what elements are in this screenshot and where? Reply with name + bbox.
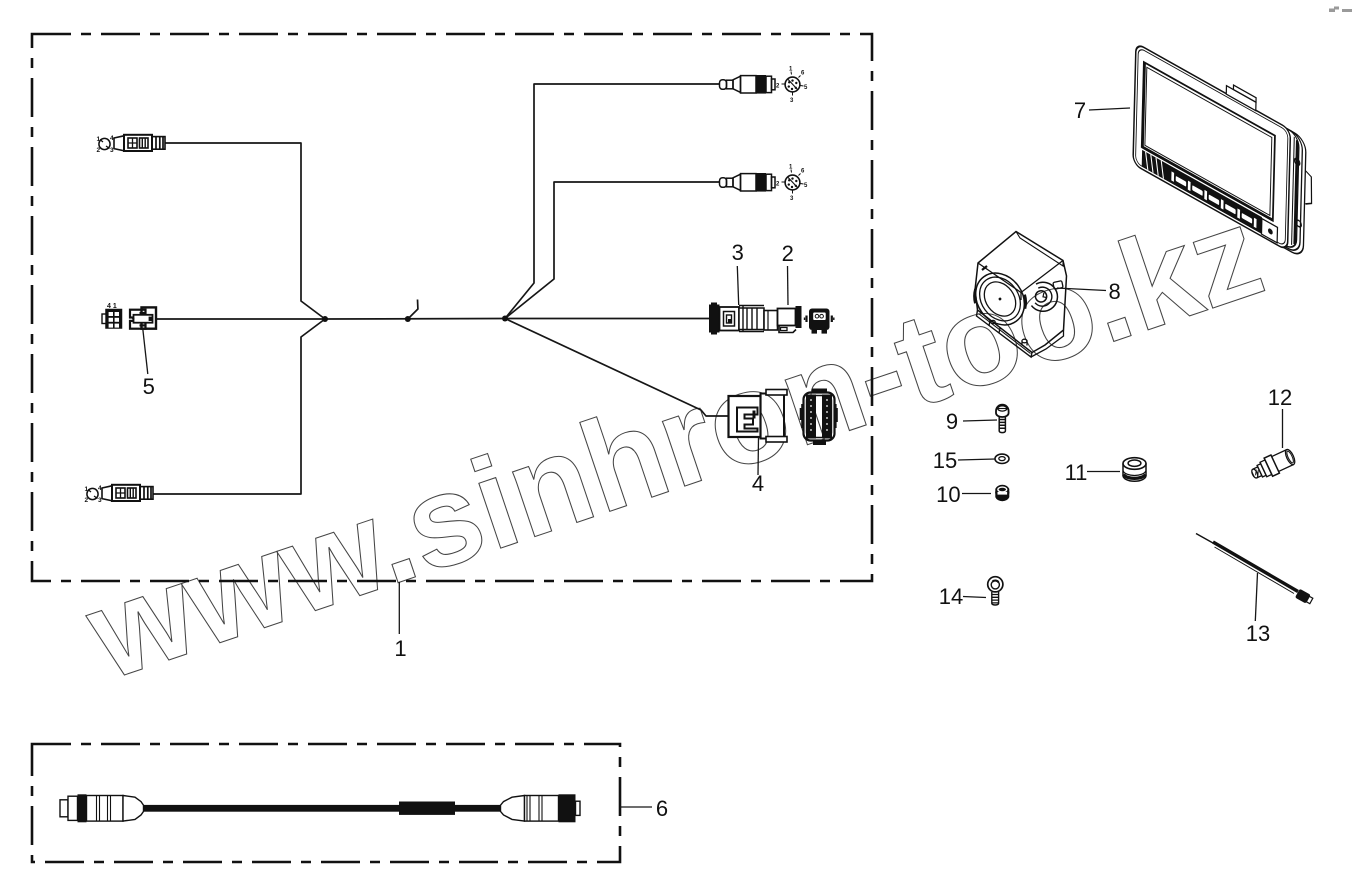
svg-text:1: 1 bbox=[85, 486, 89, 493]
svg-text:5: 5 bbox=[143, 374, 155, 399]
svg-text:2: 2 bbox=[85, 497, 89, 504]
svg-text:2: 2 bbox=[776, 182, 780, 188]
svg-text:www.sinhron-too.kz: www.sinhron-too.kz bbox=[70, 179, 1278, 707]
svg-text:14: 14 bbox=[939, 584, 963, 609]
svg-text:9: 9 bbox=[946, 409, 958, 434]
svg-text:1: 1 bbox=[789, 67, 793, 73]
svg-text:12: 12 bbox=[1268, 385, 1292, 410]
svg-text:8: 8 bbox=[1108, 279, 1120, 304]
svg-text:15: 15 bbox=[933, 448, 957, 473]
svg-text:1: 1 bbox=[97, 136, 101, 143]
svg-text:2: 2 bbox=[97, 147, 101, 154]
svg-text:1: 1 bbox=[394, 636, 406, 661]
svg-text:5: 5 bbox=[804, 183, 808, 189]
svg-text:6: 6 bbox=[801, 169, 805, 175]
svg-text:13: 13 bbox=[1246, 621, 1270, 646]
svg-text:3: 3 bbox=[790, 98, 794, 104]
svg-text:11: 11 bbox=[1065, 460, 1088, 485]
svg-text:3: 3 bbox=[790, 196, 794, 202]
svg-text:5: 5 bbox=[804, 85, 808, 91]
svg-text:6: 6 bbox=[656, 796, 668, 821]
svg-text:10: 10 bbox=[936, 482, 960, 507]
svg-text:3: 3 bbox=[732, 240, 744, 265]
svg-text:2: 2 bbox=[782, 241, 794, 266]
svg-text:6: 6 bbox=[801, 71, 805, 77]
svg-text:2: 2 bbox=[776, 84, 780, 90]
svg-text:7: 7 bbox=[1074, 98, 1086, 123]
svg-text:1: 1 bbox=[789, 165, 793, 171]
